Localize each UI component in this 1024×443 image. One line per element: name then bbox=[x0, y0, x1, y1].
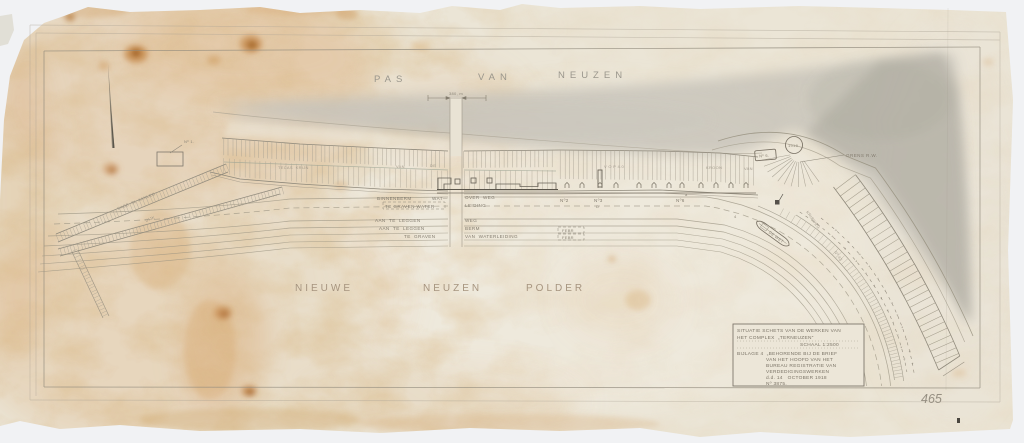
svg-text:GRENS R.W.: GRENS R.W. bbox=[846, 153, 878, 158]
svg-text:465: 465 bbox=[921, 392, 942, 406]
svg-text:AAN TE LEGGEN: AAN TE LEGGEN bbox=[375, 218, 421, 223]
svg-text:OVER WEG: OVER WEG bbox=[465, 195, 495, 200]
svg-text:AAN TE LEGGEN: AAN TE LEGGEN bbox=[379, 226, 425, 231]
svg-text:380, m: 380, m bbox=[449, 91, 463, 96]
svg-text:Nº3: Nº3 bbox=[594, 198, 603, 203]
svg-text:SCHAAL 1:2500: SCHAAL 1:2500 bbox=[800, 342, 839, 348]
svg-text:D: D bbox=[596, 204, 599, 209]
svg-text:NEUZEN: NEUZEN bbox=[423, 283, 482, 294]
svg-text:NEUZEN: NEUZEN bbox=[558, 70, 627, 81]
svg-text:POLDER: POLDER bbox=[526, 283, 585, 294]
svg-text:HET COMPLEX „TERNEUZEN”: HET COMPLEX „TERNEUZEN” bbox=[737, 335, 814, 341]
svg-text:Nº 1.: Nº 1. bbox=[184, 139, 194, 144]
svg-text:d.d. 14 OCTOBER 1918: d.d. 14 OCTOBER 1918 bbox=[766, 375, 827, 381]
svg-text:FEBR: FEBR bbox=[562, 235, 574, 240]
svg-text:FEBR: FEBR bbox=[562, 228, 574, 233]
svg-text:VAN HET HOOFD VAN HET: VAN HET HOOFD VAN HET bbox=[766, 357, 833, 363]
svg-text:VAN: VAN bbox=[396, 164, 405, 169]
svg-text:SITUATIE SCHETS VAN DE WERKEN: SITUATIE SCHETS VAN DE WERKEN VAN bbox=[737, 328, 841, 334]
svg-text:PAS: PAS bbox=[374, 74, 407, 85]
svg-text:KROON: KROON bbox=[706, 165, 722, 170]
svg-text:NIEUWE: NIEUWE bbox=[295, 283, 353, 294]
svg-text:VAN: VAN bbox=[478, 72, 512, 83]
svg-text:Nº2: Nº2 bbox=[560, 198, 569, 203]
svg-text:1918: 1918 bbox=[788, 143, 799, 148]
svg-text:VERDEDIGINGSWERKEN: VERDEDIGINGSWERKEN bbox=[766, 369, 829, 375]
svg-text:WAT—: WAT— bbox=[432, 196, 448, 201]
svg-text:Nº6: Nº6 bbox=[676, 198, 685, 203]
svg-text:LEIDING: LEIDING bbox=[465, 203, 486, 208]
svg-text:VAN WATERLEIDING: VAN WATERLEIDING bbox=[465, 234, 518, 239]
svg-text:BIJLAGE 4 „BEHORENDE BIJ DE B: BIJLAGE 4 „BEHORENDE BIJ DE BRIEF bbox=[737, 351, 837, 357]
svg-text:VAN: VAN bbox=[744, 166, 753, 171]
svg-text:WEG: WEG bbox=[465, 218, 477, 223]
svg-text:BERM: BERM bbox=[465, 226, 480, 231]
svg-text:TE GRAVEN WATER: TE GRAVEN WATER bbox=[385, 204, 435, 209]
svg-text:TE GRAVEN: TE GRAVEN bbox=[404, 234, 435, 239]
svg-text:DE: DE bbox=[430, 163, 436, 168]
svg-text:Nº 6.: Nº 6. bbox=[759, 153, 770, 159]
svg-text:V O P 4.0: V O P 4.0 bbox=[604, 164, 624, 169]
svg-text:BINNENBERM: BINNENBERM bbox=[377, 196, 412, 201]
svg-text:BUREAU REGISTRATIE VAN: BUREAU REGISTRATIE VAN bbox=[766, 363, 837, 369]
svg-text:Nº 3875.: Nº 3875. bbox=[766, 381, 787, 387]
svg-text:TECAS KRIJN: TECAS KRIJN bbox=[278, 165, 309, 170]
